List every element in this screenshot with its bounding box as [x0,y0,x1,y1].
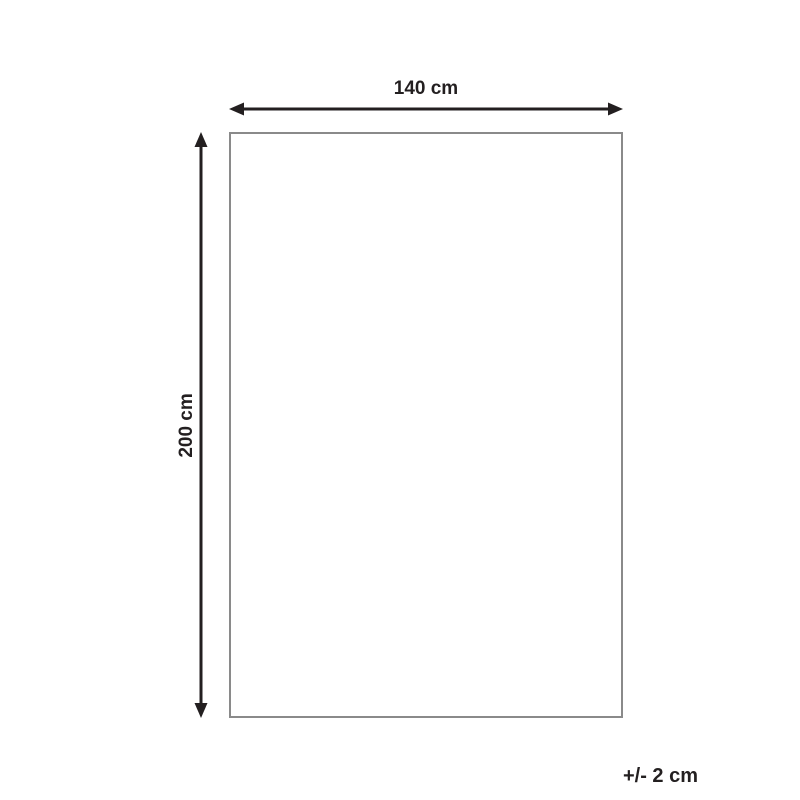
width-dimension-arrow [229,99,623,119]
arrowhead-left-icon [229,103,244,116]
height-dimension-label-wrap: 200 cm [167,132,207,718]
dimension-diagram: 140 cm 200 cm +/- 2 cm [0,0,800,800]
arrowhead-right-icon [608,103,623,116]
tolerance-label: +/- 2 cm [623,766,698,786]
width-dimension-label: 140 cm [229,79,623,100]
height-dimension-label: 200 cm [177,393,198,457]
product-outline-rectangle [229,132,623,718]
